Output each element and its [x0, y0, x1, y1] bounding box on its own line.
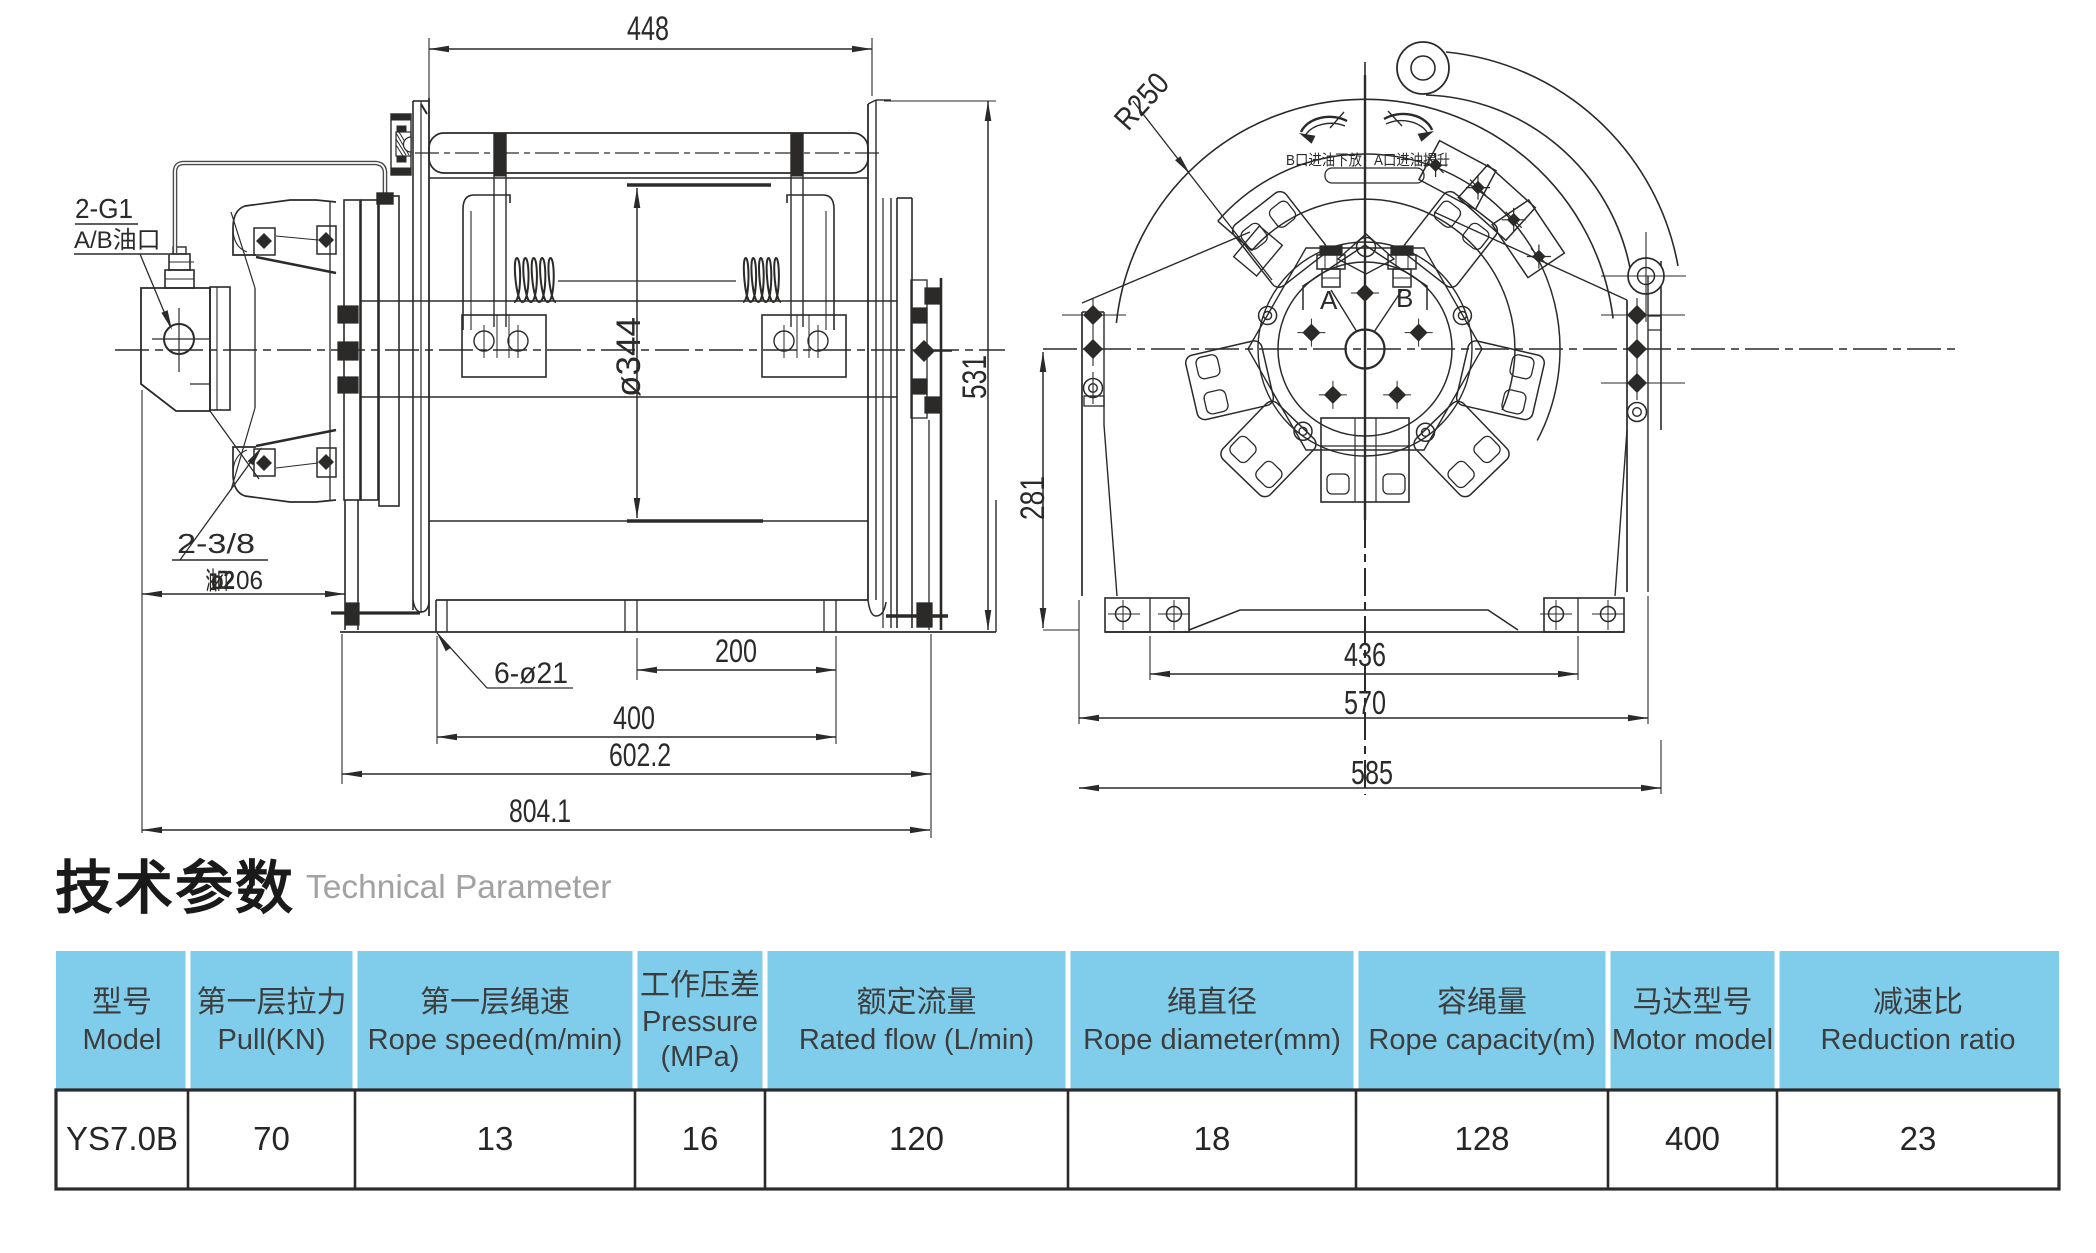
svg-text:400: 400 [1665, 1120, 1720, 1157]
svg-text:容绳量: 容绳量 [1437, 986, 1527, 1019]
svg-text:400: 400 [613, 700, 655, 736]
svg-text:B: B [1396, 283, 1413, 313]
svg-text:Pull(KN): Pull(KN) [218, 1024, 326, 1056]
svg-text:Motor model: Motor model [1612, 1024, 1773, 1056]
svg-text:128: 128 [1454, 1120, 1509, 1157]
svg-text:23: 23 [1900, 1120, 1937, 1157]
svg-text:ø2: ø2 [211, 565, 235, 595]
svg-text:Rope speed(m/min): Rope speed(m/min) [368, 1024, 623, 1056]
svg-text:18: 18 [1194, 1120, 1231, 1157]
svg-text:448: 448 [627, 10, 669, 48]
svg-text:减速比: 减速比 [1873, 986, 1963, 1019]
svg-text:200: 200 [715, 633, 757, 669]
svg-text:602.2: 602.2 [609, 737, 671, 773]
svg-text:第一层拉力: 第一层拉力 [197, 986, 347, 1019]
svg-text:2-G1: 2-G1 [75, 193, 133, 224]
svg-text:Reduction ratio: Reduction ratio [1820, 1024, 2015, 1056]
svg-text:Rated flow (L/min): Rated flow (L/min) [799, 1024, 1034, 1056]
svg-text:13: 13 [477, 1120, 514, 1157]
svg-text:6-ø21: 6-ø21 [494, 657, 568, 690]
svg-text:Technical Parameter: Technical Parameter [306, 869, 611, 906]
svg-text:额定流量: 额定流量 [857, 986, 977, 1019]
svg-text:Pressure: Pressure [642, 1006, 758, 1038]
svg-text:436: 436 [1344, 636, 1386, 673]
svg-text:570: 570 [1344, 684, 1386, 721]
svg-text:ø344: ø344 [610, 317, 648, 397]
svg-text:第一层绳速: 第一层绳速 [420, 986, 570, 1019]
svg-text:06: 06 [236, 565, 263, 595]
svg-text:Model: Model [83, 1024, 162, 1056]
svg-text:马达型号: 马达型号 [1633, 986, 1753, 1019]
svg-text:Rope capacity(m): Rope capacity(m) [1368, 1024, 1595, 1056]
svg-text:531: 531 [956, 355, 994, 399]
svg-text:A: A [1320, 285, 1338, 315]
svg-text:B口进油下放: B口进油下放 [1286, 152, 1362, 169]
svg-text:(MPa): (MPa) [661, 1041, 740, 1073]
svg-text:16: 16 [682, 1120, 719, 1157]
svg-text:70: 70 [253, 1120, 290, 1157]
svg-text:工作压差: 工作压差 [640, 969, 760, 1002]
svg-text:Rope diameter(mm): Rope diameter(mm) [1083, 1024, 1341, 1056]
svg-text:281: 281 [1014, 476, 1052, 520]
svg-text:YS7.0B: YS7.0B [66, 1120, 178, 1157]
svg-text:120: 120 [889, 1120, 944, 1157]
svg-text:绳直径: 绳直径 [1167, 986, 1257, 1019]
svg-text:A/B油口: A/B油口 [74, 227, 161, 254]
svg-text:技术参数: 技术参数 [55, 856, 295, 921]
svg-text:804.1: 804.1 [509, 793, 571, 829]
svg-text:型号: 型号 [92, 986, 152, 1019]
svg-text:2-3/8: 2-3/8 [177, 528, 255, 559]
svg-text:A口进油提升: A口进油提升 [1374, 152, 1450, 169]
svg-text:585: 585 [1351, 754, 1393, 791]
